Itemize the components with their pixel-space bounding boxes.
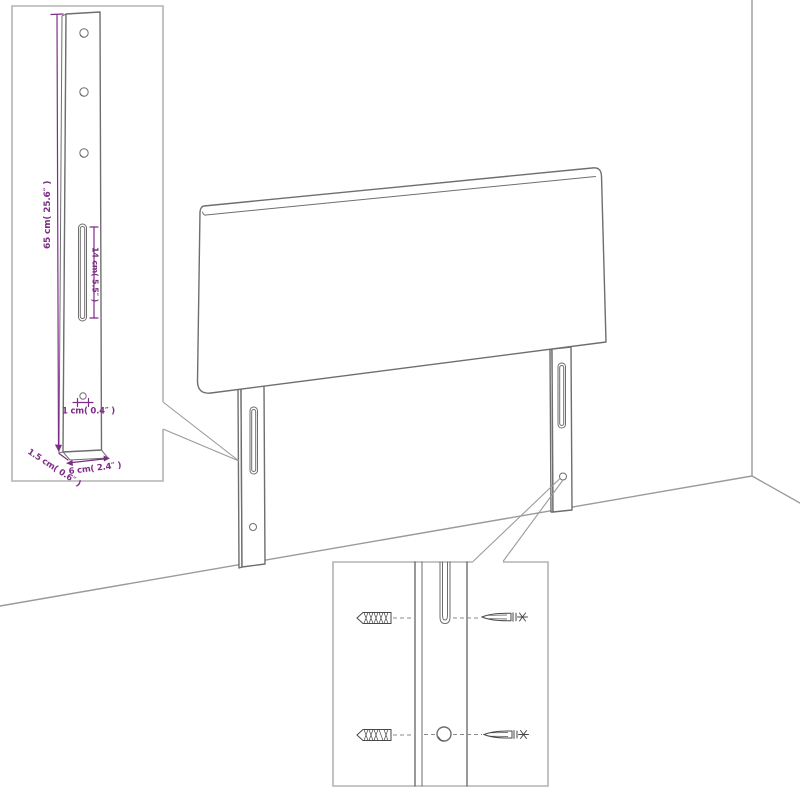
floor-edge-right [752,476,800,503]
left-inset-leader-bottom [163,429,239,461]
dim-slot-label: 14 cm( 5.5″ ) [91,247,100,302]
bottom-inset-leader-left [473,478,561,562]
mounting-inset [333,562,548,786]
left-leg-front-face [241,386,265,568]
headboard-right-leg [550,347,572,512]
left-inset-leader-top [163,402,239,461]
leg-detail-inset: 65 cm( 25.6″ ) 14 cm( 5.5″ ) 1 cm( 0.4″ … [12,6,163,489]
dim-hole-label: 1 cm( 0.4″ ) [62,407,115,417]
dim-height-label: 65 cm( 25.6″ ) [43,181,53,249]
bottom-inset-leader-right [503,480,563,562]
bracket-front-face [63,12,102,452]
headboard-front-face [198,168,607,393]
right-leg-front-face [552,347,572,512]
headboard-left-leg [238,386,265,569]
diagram-canvas: 65 cm( 25.6″ ) 14 cm( 5.5″ ) 1 cm( 0.4″ … [0,0,800,800]
callout-leaders [163,402,563,562]
headboard-panel [198,168,607,393]
